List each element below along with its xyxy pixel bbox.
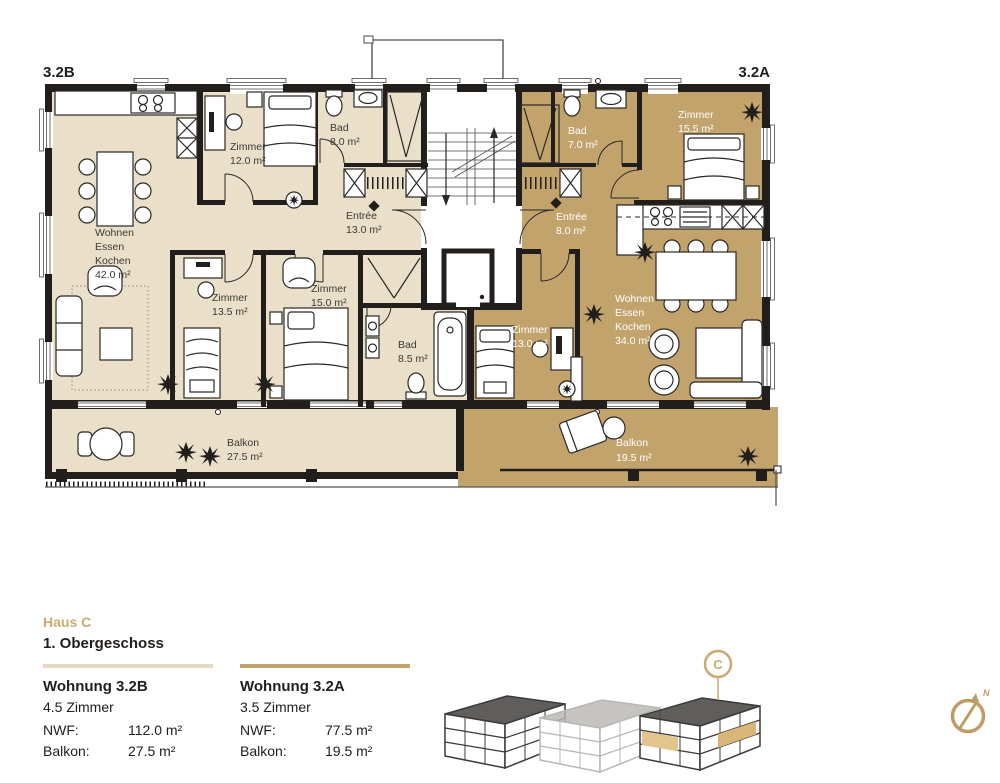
compass-n-label: N — [983, 688, 990, 698]
svg-text:13.0 m²: 13.0 m² — [346, 224, 382, 236]
unit-info-3-2a: Wohnung 3.2A 3.5 Zimmer NWF: 77.5 m² Bal… — [240, 664, 410, 762]
svg-text:Zimmer: Zimmer — [311, 283, 347, 295]
dining-table-b — [79, 152, 151, 226]
toilet-icon — [564, 90, 580, 116]
sink-icon — [596, 90, 626, 108]
divider-a — [240, 664, 410, 668]
svg-text:Wohnen: Wohnen — [95, 227, 134, 239]
svg-text:Essen: Essen — [95, 241, 124, 253]
svg-text:8.0 m²: 8.0 m² — [556, 225, 586, 237]
balkon-label: Balkon: — [43, 741, 128, 762]
nwf-value: 112.0 m² — [128, 720, 182, 741]
svg-text:19.5 m²: 19.5 m² — [616, 452, 652, 464]
svg-text:Zimmer: Zimmer — [678, 109, 714, 121]
swivel-chair-icon — [649, 365, 679, 395]
svg-text:Zimmer: Zimmer — [230, 141, 266, 153]
nwf-value: 77.5 m² — [325, 720, 372, 741]
compass-icon: N — [940, 678, 1000, 758]
floor-label: 1. Obergeschoss — [43, 635, 164, 652]
svg-text:Zimmer: Zimmer — [212, 292, 248, 304]
nwf-label: NWF: — [43, 720, 128, 741]
svg-text:8.0 m²: 8.0 m² — [330, 136, 360, 148]
svg-text:12.0 m²: 12.0 m² — [230, 155, 266, 167]
dining-table-a — [656, 240, 736, 312]
balcony-b-furniture — [78, 428, 134, 460]
floorplan-page: { "plan": { "unit_b_tag": "3.2B", "unit_… — [0, 0, 1000, 783]
svg-text:Kochen: Kochen — [95, 255, 131, 267]
wardrobe-icon — [184, 328, 220, 398]
toilet-icon — [406, 373, 426, 399]
balkon-row: Balkon: 19.5 m² — [240, 741, 410, 762]
house-c-marker: C — [705, 651, 731, 700]
svg-text:Entrée: Entrée — [556, 211, 587, 223]
wall-marker — [216, 410, 221, 415]
marker-letter: C — [713, 657, 723, 672]
bathtub-icon — [434, 312, 466, 396]
sofa-icon — [56, 296, 82, 376]
nwf-row: NWF: 77.5 m² — [240, 720, 410, 741]
unit-rooms: 3.5 Zimmer — [240, 699, 410, 715]
svg-text:Zimmer: Zimmer — [512, 324, 548, 336]
elevator-icon — [444, 251, 492, 307]
svg-text:Wohnen: Wohnen — [615, 293, 654, 305]
socket-symbol-icon — [559, 381, 575, 397]
svg-text:13.5 m²: 13.5 m² — [212, 306, 248, 318]
svg-text:15.0 m²: 15.0 m² — [311, 297, 347, 309]
balkon-value: 27.5 m² — [128, 741, 175, 762]
floor-plan: 3.2B 3.2A Wohnen Essen Kochen 42.0 m² Zi… — [0, 0, 1000, 600]
unit-rooms: 4.5 Zimmer — [43, 699, 213, 715]
svg-text:Balkon: Balkon — [227, 437, 259, 449]
balkon-label: Balkon: — [240, 741, 325, 762]
living-a — [649, 320, 762, 398]
svg-text:Bad: Bad — [398, 339, 417, 351]
unit-name: Wohnung 3.2A — [240, 678, 410, 695]
divider-b — [43, 664, 213, 668]
svg-text:Essen: Essen — [615, 307, 644, 319]
balkon-value: 19.5 m² — [325, 741, 372, 762]
bed-icon — [476, 326, 514, 398]
svg-text:Bad: Bad — [330, 122, 349, 134]
tall-cabinet-icon — [177, 118, 197, 158]
swivel-chair-icon — [649, 329, 679, 359]
building-overview: C — [440, 636, 970, 781]
sink-icon — [366, 316, 379, 336]
wall-marker — [596, 79, 601, 84]
toilet-icon — [326, 90, 342, 116]
sink-icon — [354, 90, 382, 107]
svg-text:42.0 m²: 42.0 m² — [95, 269, 131, 281]
socket-symbol-icon — [286, 192, 302, 208]
house-label: Haus C — [43, 614, 91, 630]
stove-icon — [131, 93, 175, 113]
nwf-row: NWF: 112.0 m² — [43, 720, 213, 741]
svg-text:34.0 m²: 34.0 m² — [615, 335, 651, 347]
nwf-label: NWF: — [240, 720, 325, 741]
unit-name: Wohnung 3.2B — [43, 678, 213, 695]
unit-b-tag: 3.2B — [43, 64, 75, 81]
bed-icon — [264, 92, 316, 166]
svg-text:13.0 m²: 13.0 m² — [512, 338, 548, 350]
svg-text:8.5 m²: 8.5 m² — [398, 353, 428, 365]
unit-info-3-2b: Wohnung 3.2B 4.5 Zimmer NWF: 112.0 m² Ba… — [43, 664, 213, 762]
svg-text:Entrée: Entrée — [346, 210, 377, 222]
svg-text:Bad: Bad — [568, 125, 587, 137]
unit-a-tag: 3.2A — [738, 64, 770, 81]
svg-text:Kochen: Kochen — [615, 321, 651, 333]
svg-text:Balkon: Balkon — [616, 437, 648, 449]
svg-text:15.5 m²: 15.5 m² — [678, 123, 714, 135]
sink-icon — [366, 338, 379, 358]
svg-text:7.0 m²: 7.0 m² — [568, 139, 598, 151]
balkon-row: Balkon: 27.5 m² — [43, 741, 213, 762]
svg-text:27.5 m²: 27.5 m² — [227, 451, 263, 463]
